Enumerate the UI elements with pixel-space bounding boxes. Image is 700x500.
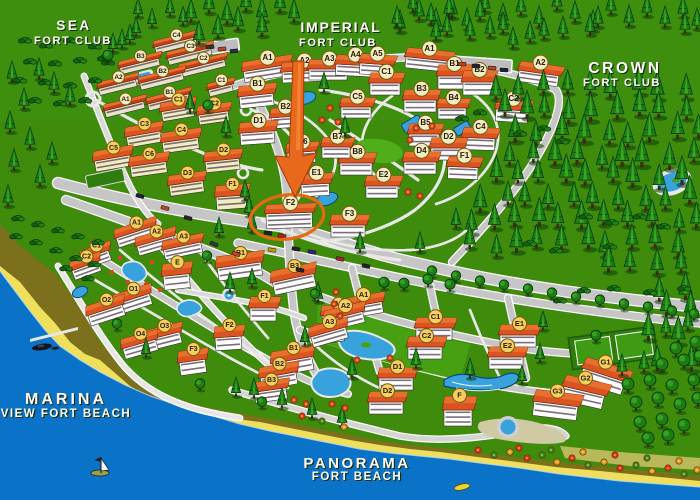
- svg-text:O4: O4: [136, 331, 145, 338]
- svg-text:FORT CLUB: FORT CLUB: [34, 35, 112, 47]
- svg-text:A1: A1: [132, 220, 141, 227]
- svg-text:B8: B8: [352, 147, 363, 156]
- svg-text:F: F: [457, 391, 462, 400]
- svg-text:C4: C4: [172, 32, 181, 39]
- svg-text:C5: C5: [109, 145, 118, 152]
- svg-text:G3: G3: [552, 386, 562, 395]
- svg-text:D1: D1: [393, 362, 403, 371]
- svg-text:C4: C4: [475, 122, 486, 131]
- svg-text:C6: C6: [145, 151, 154, 158]
- svg-text:F2: F2: [286, 198, 296, 207]
- svg-text:B2: B2: [275, 361, 284, 368]
- svg-text:C1: C1: [174, 97, 183, 104]
- svg-text:C1: C1: [217, 77, 226, 84]
- svg-text:D2: D2: [219, 147, 228, 154]
- svg-text:A1: A1: [121, 96, 130, 103]
- svg-text:B3: B3: [136, 53, 145, 60]
- svg-text:G1: G1: [600, 357, 610, 366]
- svg-text:FORT CLUB: FORT CLUB: [299, 37, 377, 49]
- svg-text:MARINA: MARINA: [25, 391, 107, 408]
- svg-text:B1: B1: [289, 345, 298, 352]
- svg-text:E1: E1: [515, 319, 524, 328]
- svg-text:A2: A2: [114, 74, 123, 81]
- svg-text:D2: D2: [383, 386, 393, 395]
- svg-text:E: E: [175, 259, 180, 266]
- svg-text:C2: C2: [422, 331, 432, 340]
- svg-text:D4: D4: [416, 146, 427, 155]
- svg-text:VIEW FORT BEACH: VIEW FORT BEACH: [1, 408, 131, 420]
- svg-text:B2: B2: [280, 102, 291, 111]
- svg-text:D1: D1: [253, 116, 264, 125]
- svg-text:B3: B3: [267, 377, 276, 384]
- svg-text:A2: A2: [535, 58, 546, 67]
- svg-text:C5: C5: [352, 92, 363, 101]
- svg-text:B3: B3: [416, 84, 427, 93]
- svg-text:B2: B2: [158, 68, 167, 75]
- svg-text:A3: A3: [325, 317, 335, 326]
- svg-text:C2: C2: [199, 55, 208, 62]
- svg-text:E2: E2: [379, 170, 389, 179]
- svg-text:F1: F1: [228, 181, 236, 188]
- svg-text:A1: A1: [262, 53, 273, 62]
- svg-text:O1: O1: [129, 286, 138, 293]
- svg-text:C2: C2: [82, 254, 91, 261]
- svg-text:E2: E2: [503, 341, 512, 350]
- svg-text:B1: B1: [165, 89, 174, 96]
- svg-text:PANORAMA: PANORAMA: [303, 455, 410, 472]
- svg-text:FORT BEACH: FORT BEACH: [312, 471, 402, 483]
- svg-text:D3: D3: [183, 170, 192, 177]
- svg-text:IMPERIAL: IMPERIAL: [300, 19, 381, 35]
- svg-text:C4: C4: [177, 127, 186, 134]
- svg-text:A3: A3: [179, 234, 188, 241]
- svg-text:F2: F2: [225, 322, 233, 329]
- svg-text:F1: F1: [260, 293, 268, 300]
- svg-text:C1: C1: [431, 312, 441, 321]
- svg-text:A2: A2: [152, 229, 161, 236]
- svg-text:A1: A1: [424, 44, 435, 53]
- svg-text:B1: B1: [252, 79, 263, 88]
- svg-text:O2: O2: [102, 297, 111, 304]
- svg-text:A3: A3: [324, 54, 335, 63]
- svg-text:A1: A1: [359, 290, 369, 299]
- svg-text:CROWN: CROWN: [588, 60, 661, 77]
- svg-text:C1: C1: [381, 67, 392, 76]
- svg-text:F3: F3: [345, 209, 355, 218]
- svg-text:A4: A4: [350, 50, 361, 59]
- svg-text:O3: O3: [160, 323, 169, 330]
- svg-text:E1: E1: [312, 168, 322, 177]
- svg-text:C3: C3: [140, 121, 149, 128]
- svg-text:F3: F3: [189, 346, 197, 353]
- svg-text:FORT CLUB: FORT CLUB: [583, 77, 661, 89]
- svg-text:F1: F1: [460, 151, 470, 160]
- svg-text:A2: A2: [341, 301, 351, 310]
- svg-text:SEA: SEA: [56, 18, 91, 33]
- svg-text:C3: C3: [186, 43, 195, 50]
- svg-text:G2: G2: [580, 373, 590, 382]
- svg-text:D2: D2: [443, 132, 454, 141]
- svg-text:B4: B4: [448, 93, 459, 102]
